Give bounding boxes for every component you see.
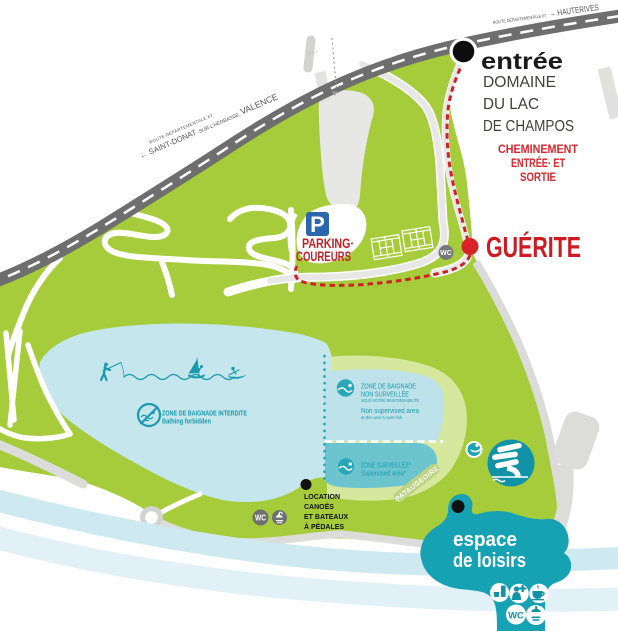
svg-text:DOMAINE: DOMAINE — [483, 74, 556, 91]
svg-text:CHEMINEMENT: CHEMINEMENT — [498, 144, 578, 156]
svg-text:de loisirs: de loisirs — [453, 550, 526, 572]
svg-text:SORTIE: SORTIE — [520, 172, 556, 184]
svg-text:DE CHAMPOS: DE CHAMPOS — [483, 118, 574, 135]
svg-text:À PÉDALES: À PÉDALES — [304, 522, 344, 531]
svg-text:CANOËS: CANOËS — [304, 503, 334, 511]
svg-text:GUÉRITE: GUÉRITE — [486, 230, 581, 264]
svg-text:ENTRÉE· ET: ENTRÉE· ET — [511, 157, 565, 170]
svg-text:ET BATEAUX: ET BATEAUX — [304, 514, 349, 521]
svg-text:Non supervised area: Non supervised area — [361, 406, 420, 415]
svg-text:espace: espace — [453, 529, 517, 551]
svg-text:SOUS VOTRE RESPONSABILITÉ: SOUS VOTRE RESPONSABILITÉ — [361, 397, 419, 403]
svg-text:Bathing forbidden: Bathing forbidden — [162, 419, 211, 426]
svg-text:WC: WC — [255, 514, 266, 523]
svg-text:COUREURS: COUREURS — [296, 249, 351, 264]
svg-text:WC: WC — [440, 250, 452, 257]
svg-text:DU LAC: DU LAC — [483, 96, 539, 113]
svg-text:WC: WC — [508, 611, 524, 622]
svg-text:ZONE DE BAIGNADE INTERDITE: ZONE DE BAIGNADE INTERDITE — [162, 411, 247, 418]
svg-text:P: P — [310, 212, 325, 237]
svg-text:at the user’s own risk: at the user’s own risk — [361, 415, 403, 420]
svg-text:LOCATION: LOCATION — [304, 494, 340, 501]
svg-text:Supervised area*: Supervised area* — [361, 469, 406, 478]
svg-text:entrée: entrée — [481, 48, 563, 74]
